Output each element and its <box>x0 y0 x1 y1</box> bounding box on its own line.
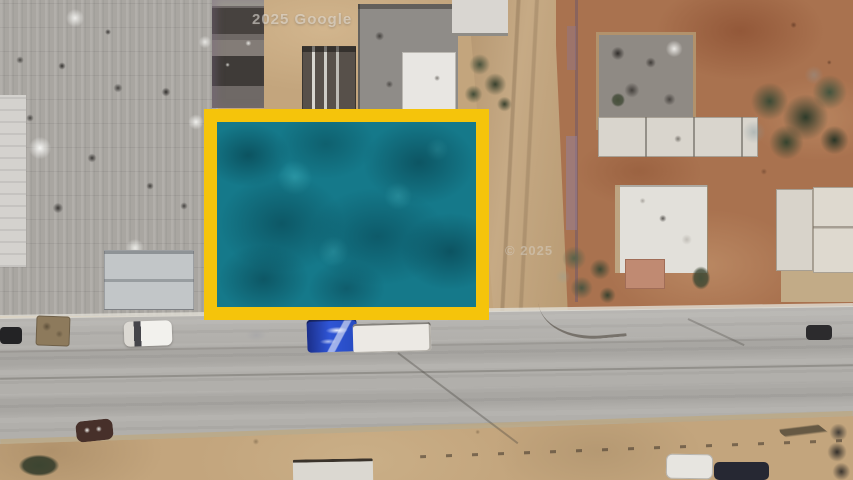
shrub <box>686 260 716 296</box>
white-outbuildings <box>598 117 758 157</box>
small-bush <box>12 451 66 480</box>
dark-shed-roof <box>302 46 356 111</box>
white-roof-section <box>402 52 456 110</box>
roadside-shrubs <box>458 48 520 114</box>
south-fence-posts <box>420 439 853 459</box>
dark-car <box>806 325 832 340</box>
blue-truck-cab <box>306 318 357 353</box>
satellite-map-canvas[interactable]: 2025 Google © 2025 <box>0 0 853 480</box>
salmon-roof-section <box>625 259 665 289</box>
white-pickup-truck <box>124 320 173 347</box>
dark-blue-car <box>714 462 769 480</box>
tan-building-gray-roof <box>596 32 696 130</box>
maroon-car <box>75 418 114 443</box>
white-warehouse-roof <box>0 95 26 267</box>
white-corner-building <box>452 0 508 36</box>
mobile-home-roof <box>776 189 813 271</box>
white-car <box>666 454 713 480</box>
imagery-watermark: © 2025 <box>505 243 553 258</box>
dark-sedan <box>231 324 287 347</box>
white-truck-trailer <box>353 322 432 353</box>
mobile-home-roof <box>813 187 853 273</box>
shrub <box>606 88 630 112</box>
large-tree <box>736 58 853 172</box>
fence-panel <box>567 26 576 70</box>
pale-shed-roof <box>104 250 194 310</box>
rust-colored-object <box>35 315 70 346</box>
fence-panel <box>566 136 577 230</box>
google-watermark: 2025 Google <box>252 11 352 28</box>
white-trailer <box>293 458 373 480</box>
black-car <box>0 327 22 344</box>
dark-yard-objects <box>824 424 853 480</box>
selected-parcel-highlight[interactable] <box>204 109 489 320</box>
